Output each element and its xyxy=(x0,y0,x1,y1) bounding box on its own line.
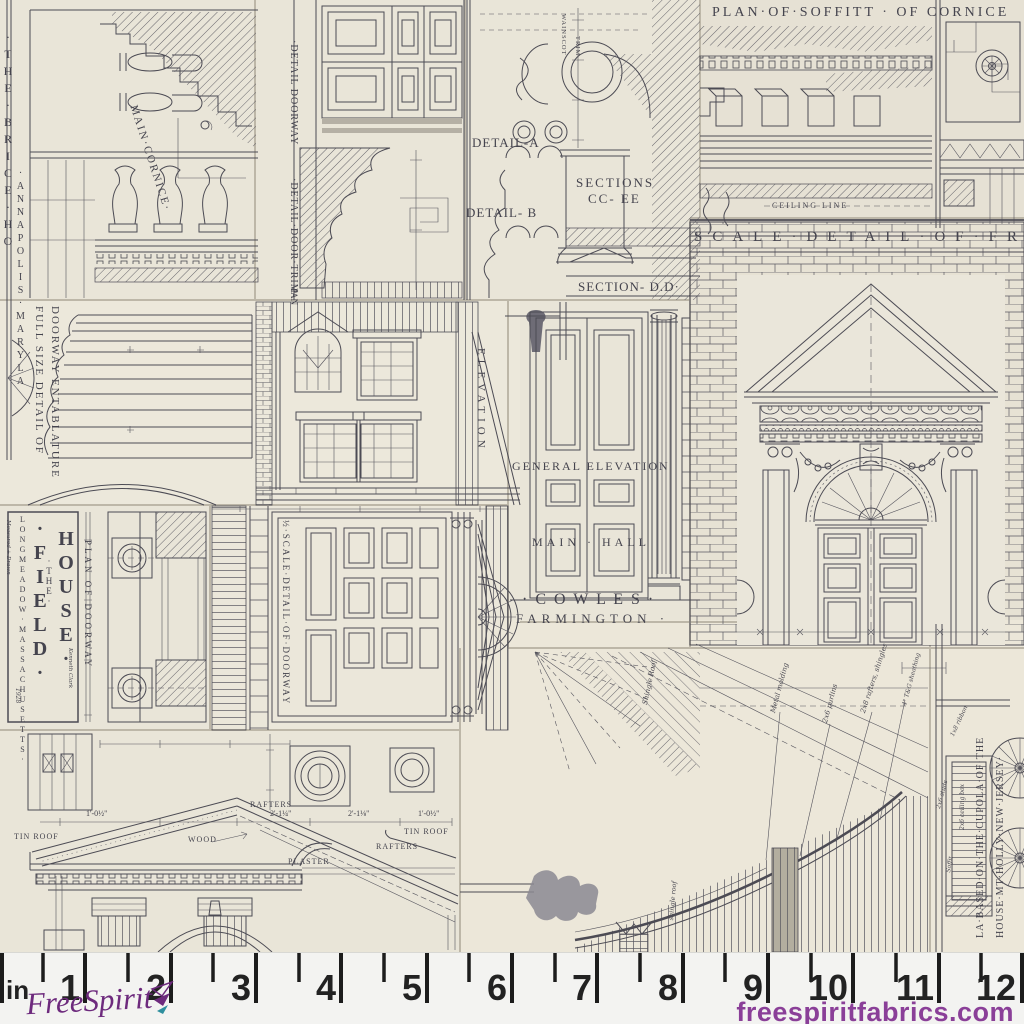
dim-3: 2'-1⅛" xyxy=(348,810,369,818)
fullsize-line1: FULL SIZE DETAIL OF xyxy=(33,306,44,455)
detail-b-label: DETAIL- B xyxy=(466,206,537,219)
ceiling-line-label: CEILING LINE xyxy=(772,202,848,210)
ruler: in 1 2 3 4 5 6 7 8 9 10 11 12 FreeSpirit… xyxy=(0,952,1024,1024)
cupola-title-line2: HOUSE·MT·HOLLY·NEW·JERSEY· xyxy=(996,756,1006,938)
main-hall-label: MAIN · HALL xyxy=(532,536,650,548)
sections-label: SECTIONS xyxy=(576,176,654,189)
trim-label: TRIM xyxy=(574,36,581,56)
fullsize-line2: DOORWAY ENTABLATURE xyxy=(49,306,60,479)
fieldhouse-the: ·THE· xyxy=(44,556,53,676)
panel-front-doorway xyxy=(690,222,1024,645)
freespirit-logo: FreeSpirit xyxy=(25,980,153,1023)
brice-title-col2: ·ANNAPOLIS·MARYLA xyxy=(15,168,25,468)
ruler-number-3: 3 xyxy=(227,967,251,1009)
section-dd-label: SECTION- D.D· xyxy=(578,280,680,293)
wainscot-label: WAINSCOT xyxy=(560,14,567,56)
ruler-number-4: 4 xyxy=(312,967,336,1009)
wood-label: WOOD xyxy=(188,836,217,844)
pan-label: PAN xyxy=(289,288,298,305)
dim-1: 1'-0½" xyxy=(86,810,107,818)
soffit-title: PLAN·OF·SOFFITT · OF CORNICE xyxy=(712,6,1009,20)
fabric-swatch: ·THE·BRICE·HO ·ANNAPOLIS·MARYLA MAIN·COR… xyxy=(0,0,1024,1024)
brice-title-col1: ·THE·BRICE·HO xyxy=(2,30,14,330)
rafters-right-label: RAFTERS xyxy=(376,843,418,851)
fieldhouse-year: 1928 xyxy=(14,688,20,703)
ruler-number-7: 7 xyxy=(568,967,592,1009)
ruler-number-5: 5 xyxy=(398,967,422,1009)
ruler-number-8: 8 xyxy=(654,967,678,1009)
cupola-title-line1: LA·BASED·ON·THE·CUPOLA·OF·THE xyxy=(976,737,986,938)
credit-measured: Measured + Drawn xyxy=(5,520,11,575)
tin-roof-right-label: TIN ROOF xyxy=(404,828,449,836)
plan-of-doorway-label: PLAN OF DOORWAY xyxy=(83,540,92,669)
sections-cc-ee-label: CC- EE xyxy=(588,192,641,205)
credit-clark: Kenneth Clark xyxy=(67,648,73,688)
detail-door-trim-label: ·DETAIL·DOOR·TRIM xyxy=(288,178,298,294)
front-title: SCALE·DETAIL·OF·FRONT xyxy=(694,230,1024,245)
detail-doorway-label: ·DETAIL DOORWAY xyxy=(288,40,298,145)
elevation-label: ELEVATION xyxy=(475,348,486,453)
detail-a-label: DETAIL-A xyxy=(472,136,540,149)
note-ceiling-box: 2x6 ceiling box xyxy=(960,784,966,830)
general-elevation-label: GENERAL ELEVATION xyxy=(512,460,670,472)
website-text: freespiritfabrics.com xyxy=(736,997,1014,1024)
freespirit-logo-icon xyxy=(150,981,176,1015)
dim-2: 2'-1¼" xyxy=(270,810,291,818)
ruler-number-6: 6 xyxy=(483,967,507,1009)
tin-roof-left-label: TIN ROOF xyxy=(14,833,59,841)
rafters-top-label: RAFTERS xyxy=(250,801,292,809)
fieldhouse-house: HOUSE· xyxy=(56,528,76,723)
plaster-label: PLASTER xyxy=(288,858,330,866)
dim-4: 1'-0½" xyxy=(418,810,439,818)
cowles-label: · C O W L E S · xyxy=(522,592,655,608)
farmington-label: FARMINGTON · xyxy=(516,612,669,625)
half-scale-doorway-label: ½·SCALE·DETAIL·OF·DOORWAY xyxy=(281,520,290,705)
